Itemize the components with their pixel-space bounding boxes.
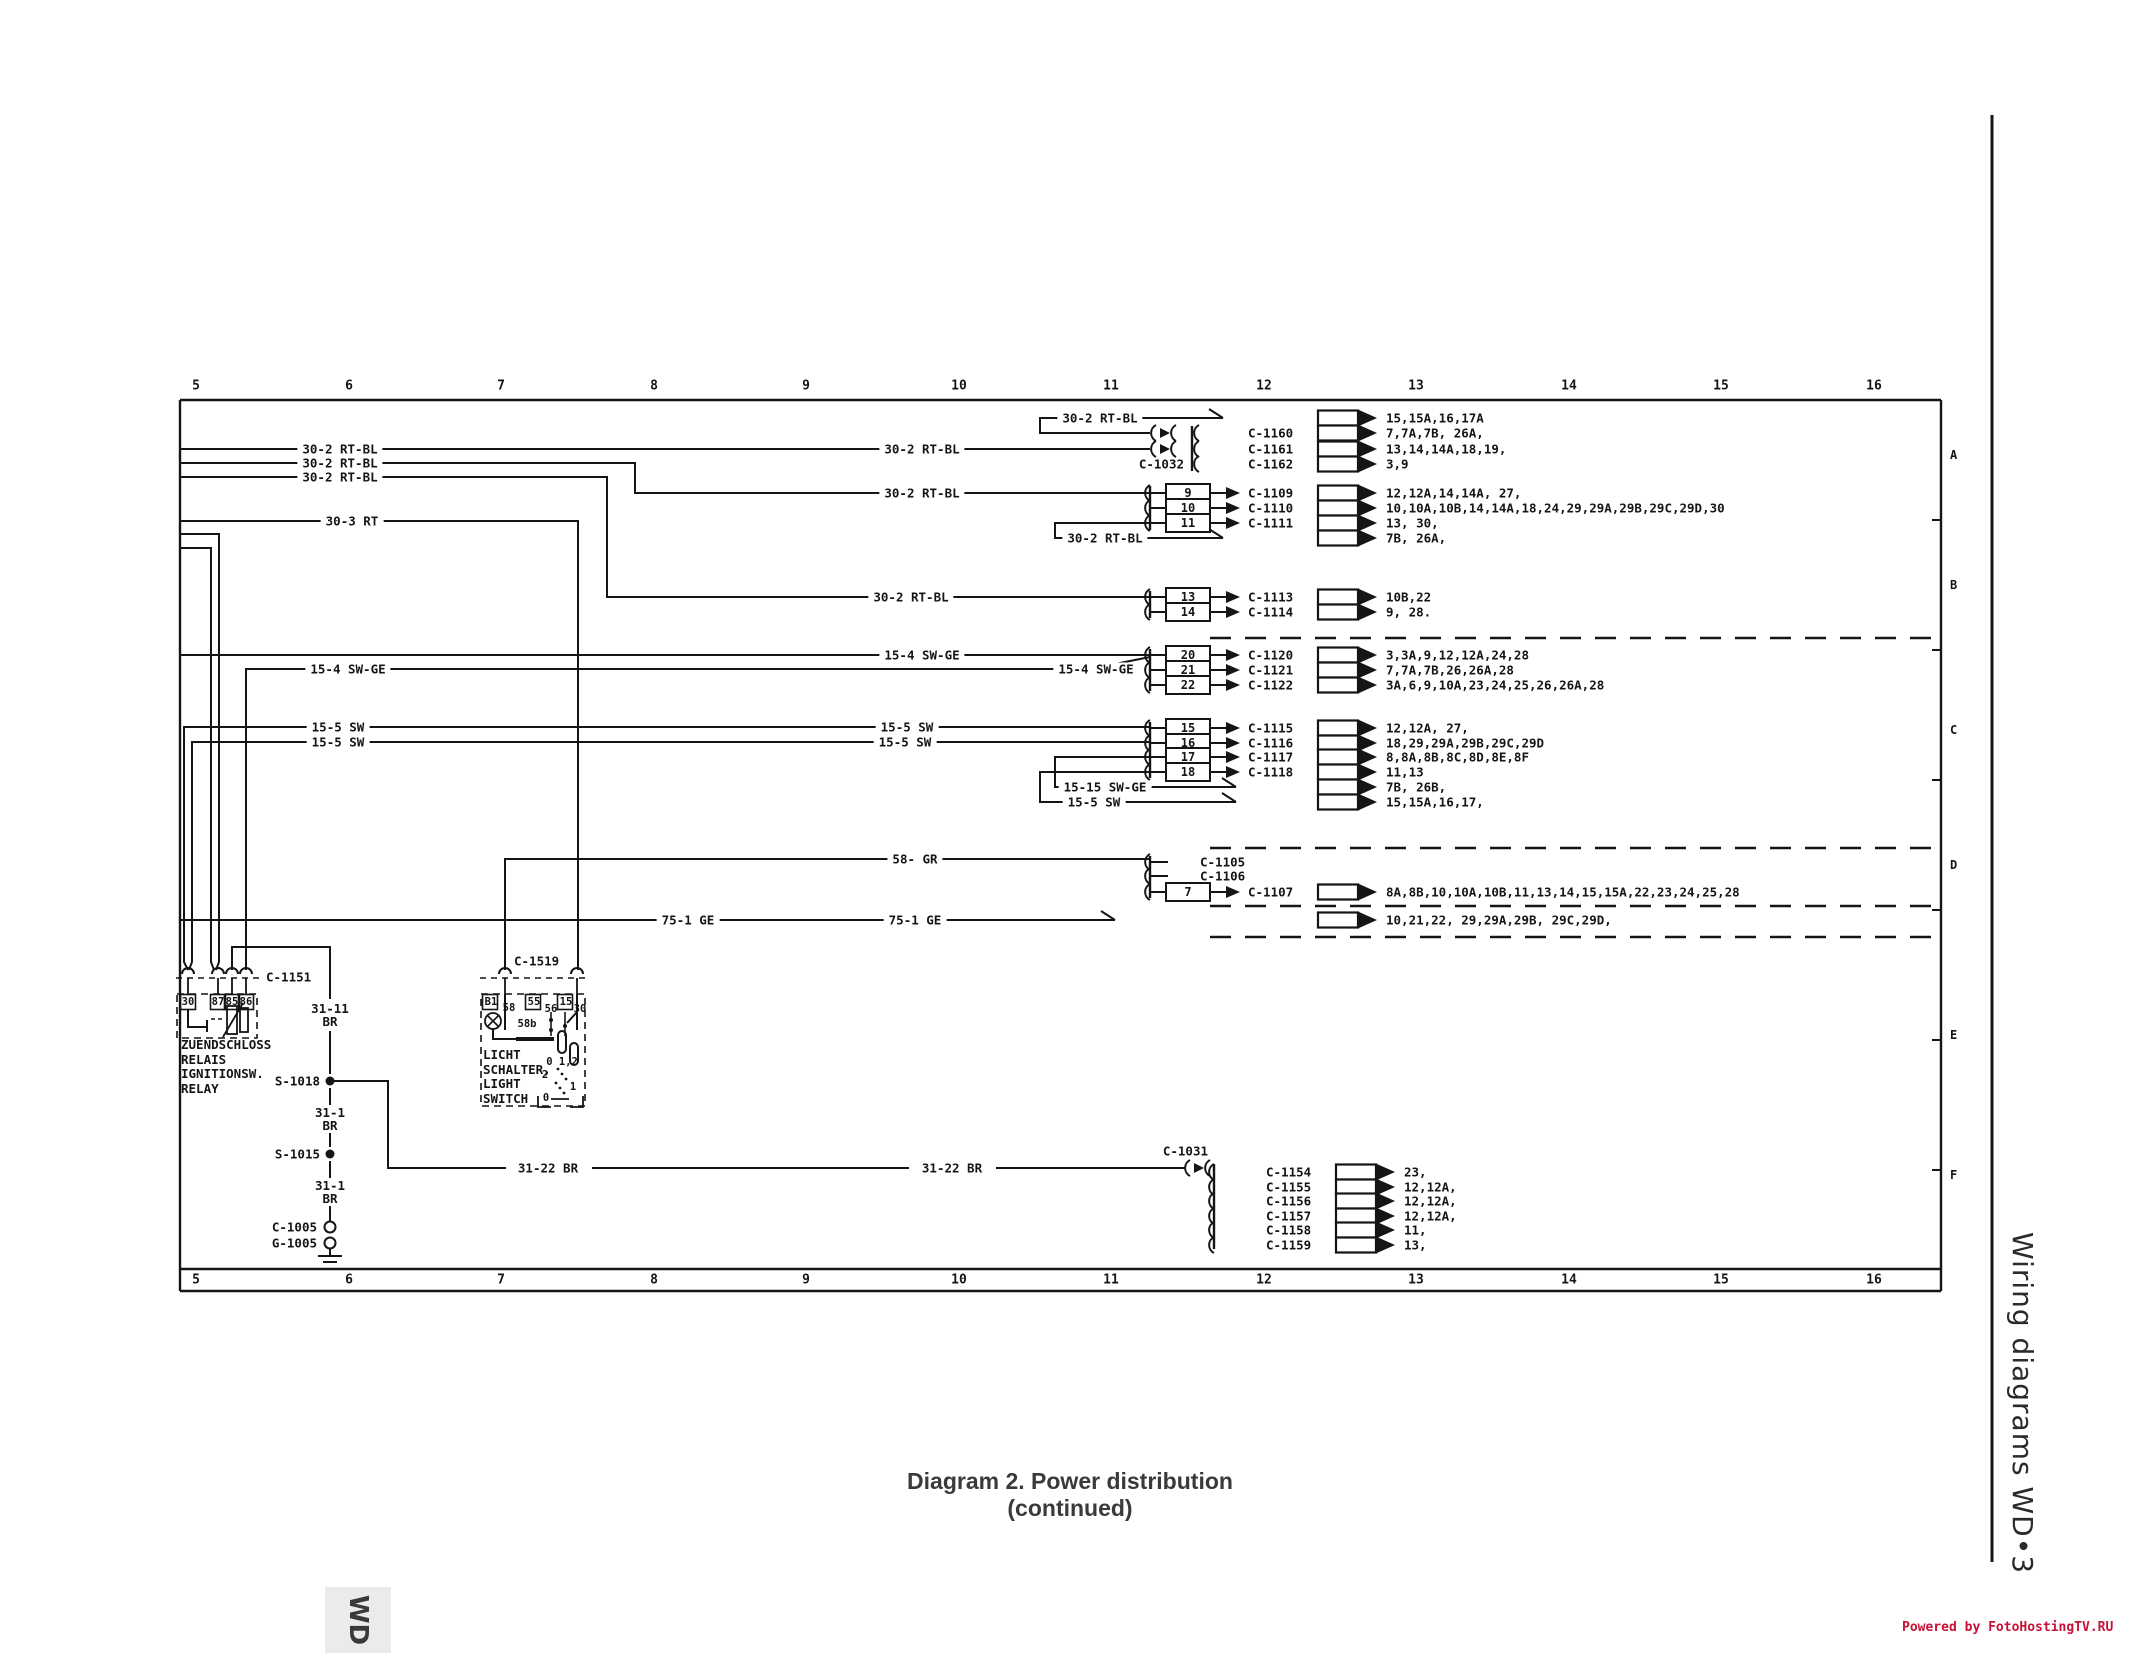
- circuit-numbers: 7B, 26A,: [1386, 532, 1446, 545]
- switch-terminal: B1: [485, 996, 498, 1008]
- connector-label: C-1032: [1139, 458, 1184, 471]
- connector-label: C-1107: [1248, 886, 1293, 899]
- connector-label: C-1519: [514, 955, 559, 968]
- grid-row-label: C: [1950, 723, 1957, 737]
- connector-label: C-1105: [1200, 856, 1245, 869]
- wire-label: 30-3 RT: [321, 515, 384, 528]
- wire-label: 75-1 GE: [657, 914, 720, 927]
- connector-label: C-1156: [1266, 1195, 1311, 1208]
- grid-col-label: 13: [1408, 1273, 1424, 1288]
- grid-col-label: 8: [650, 1273, 658, 1288]
- diagram-caption: Diagram 2. Power distribution (continued…: [845, 1468, 1295, 1522]
- relay-terminal: 30: [182, 996, 195, 1008]
- circuit-numbers: 12,12A,14,14A, 27,: [1386, 487, 1521, 500]
- grid-col-label: 14: [1561, 379, 1577, 394]
- grid-col-label: 14: [1561, 1273, 1577, 1288]
- circuit-numbers: 7,7A,7B,26,26A,28: [1386, 664, 1514, 677]
- grid-col-label: 9: [802, 379, 810, 394]
- connector-label: C-1117: [1248, 751, 1293, 764]
- grid-col-label: 15: [1713, 379, 1729, 394]
- wire-label: 31-22 BR: [513, 1162, 583, 1175]
- grid-col-label: 10: [951, 1273, 967, 1288]
- ground-label: G-1005: [272, 1237, 317, 1250]
- wd-section-tab: WD: [325, 1587, 391, 1653]
- grid-col-label: 7: [497, 1273, 505, 1288]
- circuit-numbers: 11,13: [1386, 766, 1424, 779]
- splice-label: S-1015: [275, 1148, 320, 1161]
- wire-label: 15-4 SW-GE: [879, 649, 964, 662]
- circuit-numbers: 10,10A,10B,14,14A,18,24,29,29A,29B,29C,2…: [1386, 502, 1725, 515]
- circuit-numbers: 11,: [1404, 1224, 1427, 1237]
- connector-label: C-1111: [1248, 517, 1293, 530]
- circuit-numbers: 13,14,14A,18,19,: [1386, 443, 1506, 456]
- grid-col-label: 7: [497, 379, 505, 394]
- wire-label: 30-2 RT-BL: [297, 443, 382, 456]
- wire-label: 31-22 BR: [917, 1162, 987, 1175]
- wire-label: 15-5 SW: [876, 721, 939, 734]
- wire-label: 15-4 SW-GE: [1053, 663, 1138, 676]
- pin-number: 20: [1181, 648, 1195, 662]
- pin-number: 22: [1181, 678, 1195, 692]
- connector-label: C-1005: [272, 1221, 317, 1234]
- wire-label: 31-11 BR: [306, 1002, 354, 1028]
- grid-col-label: 8: [650, 379, 658, 394]
- circuit-numbers: 3,3A,9,12,12A,24,28: [1386, 649, 1529, 662]
- pin-number: 18: [1181, 765, 1195, 779]
- connector-label: C-1151: [266, 971, 311, 984]
- circuit-numbers: 3A,6,9,10A,23,24,25,26,26A,28: [1386, 679, 1604, 692]
- connector-label: C-1159: [1266, 1239, 1311, 1252]
- switch-terminal: 15: [560, 996, 573, 1008]
- connector-label: C-1031: [1163, 1145, 1208, 1158]
- switch-terminal: 58b: [518, 1018, 537, 1030]
- wire-label: 15-4 SW-GE: [305, 663, 390, 676]
- wire-label: 30-2 RT-BL: [868, 591, 953, 604]
- wire-label: 15-5 SW: [1063, 796, 1126, 809]
- wire-label: 30-2 RT-BL: [879, 443, 964, 456]
- wire-label: 30-2 RT-BL: [1062, 532, 1147, 545]
- circuit-numbers: 8,8A,8B,8C,8D,8E,8F: [1386, 751, 1529, 764]
- circuit-numbers: 12,12A,: [1404, 1195, 1457, 1208]
- wd-tab-label: WD: [343, 1595, 373, 1645]
- wire-label: 30-2 RT-BL: [297, 471, 382, 484]
- circuit-numbers: 12,12A,: [1404, 1210, 1457, 1223]
- circuit-numbers: 7B, 26B,: [1386, 781, 1446, 794]
- switch-position-label: 1: [570, 1081, 576, 1093]
- connector-label: C-1115: [1248, 722, 1293, 735]
- switch-terminal: 56: [545, 1003, 558, 1015]
- connector-label: C-1122: [1248, 679, 1293, 692]
- grid-row-label: E: [1950, 1028, 1957, 1042]
- wire-label: 31-1 BR: [310, 1106, 350, 1132]
- circuit-numbers: 10B,22: [1386, 591, 1431, 604]
- circuit-numbers: 15,15A,16,17,: [1386, 796, 1484, 809]
- pin-number: 7: [1184, 885, 1191, 899]
- grid-col-label: 5: [192, 1273, 200, 1288]
- circuit-numbers: 3,9: [1386, 458, 1409, 471]
- circuit-numbers: 12,12A,: [1404, 1181, 1457, 1194]
- connector-label: C-1110: [1248, 502, 1293, 515]
- circuit-numbers: 23,: [1404, 1166, 1427, 1179]
- pin-number: 10: [1181, 501, 1195, 515]
- wire-label: 15-5 SW: [307, 721, 370, 734]
- connector-label: C-1154: [1266, 1166, 1311, 1179]
- connector-label: C-1162: [1248, 458, 1293, 471]
- grid-col-label: 13: [1408, 379, 1424, 394]
- grid-col-label: 12: [1256, 379, 1272, 394]
- relay-terminal: 85: [226, 996, 239, 1008]
- connector-label: C-1114: [1248, 606, 1293, 619]
- pin-number: 15: [1181, 721, 1195, 735]
- grid-row-label: F: [1950, 1168, 1957, 1182]
- switch-terminal: 58: [503, 1002, 516, 1014]
- circuit-numbers: 10,21,22, 29,29A,29B, 29C,29D,: [1386, 914, 1612, 927]
- grid-col-label: 16: [1866, 1273, 1882, 1288]
- connector-label: C-1106: [1200, 870, 1245, 883]
- circuit-numbers: 12,12A, 27,: [1386, 722, 1469, 735]
- grid-col-label: 15: [1713, 1273, 1729, 1288]
- wire-label: 30-2 RT-BL: [297, 457, 382, 470]
- pin-number: 16: [1181, 736, 1195, 750]
- relay-terminal: 87: [212, 996, 225, 1008]
- grid-col-label: 11: [1103, 1273, 1119, 1288]
- connector-label: C-1121: [1248, 664, 1293, 677]
- wiring-diagram-page: 5 6 7 8 9 10 11 12 13 14 15 16 5 6 7 8 9…: [0, 0, 2131, 1653]
- wire-label: 15-5 SW: [307, 736, 370, 749]
- wire-label: 75-1 GE: [884, 914, 947, 927]
- switch-position-label: 0: [543, 1092, 549, 1104]
- connector-label: C-1118: [1248, 766, 1293, 779]
- connector-label: C-1161: [1248, 443, 1293, 456]
- circuit-numbers: 9, 28.: [1386, 606, 1431, 619]
- connector-brackets: [1145, 410, 1395, 1253]
- circuit-numbers: 15,15A,16,17A: [1386, 412, 1484, 425]
- wire-label: 58- GR: [887, 853, 942, 866]
- wire-label: 30-2 RT-BL: [1057, 412, 1142, 425]
- circuit-numbers: 8A,8B,10,10A,10B,11,13,14,15,15A,22,23,2…: [1386, 886, 1740, 899]
- wire-label: 15-5 SW: [874, 736, 937, 749]
- pin-number: 17: [1181, 750, 1195, 764]
- circuit-numbers: 13, 30,: [1386, 517, 1439, 530]
- wire-label: 30-2 RT-BL: [879, 487, 964, 500]
- connector-label: C-1158: [1266, 1224, 1311, 1237]
- circuit-numbers: 13,: [1404, 1239, 1427, 1252]
- wire-label: 15-15 SW-GE: [1059, 781, 1152, 794]
- connector-label: C-1160: [1248, 427, 1293, 440]
- grid-row-label: A: [1950, 448, 1957, 462]
- grid-row-label: B: [1950, 578, 1957, 592]
- grid-col-label: 5: [192, 379, 200, 394]
- switch-terminal: 55: [528, 996, 541, 1008]
- grid-frame: [180, 115, 1992, 1562]
- grid-col-label: 6: [345, 379, 353, 394]
- grid-col-label: 12: [1256, 1273, 1272, 1288]
- connector-label: C-1120: [1248, 649, 1293, 662]
- pin-number: 9: [1184, 486, 1191, 500]
- switch-position-label: 2: [542, 1069, 548, 1081]
- pin-number: 14: [1181, 605, 1195, 619]
- circuit-numbers: 7,7A,7B, 26A,: [1386, 427, 1484, 440]
- circuit-numbers: 18,29,29A,29B,29C,29D: [1386, 737, 1544, 750]
- connector-label: C-1109: [1248, 487, 1293, 500]
- grid-col-label: 10: [951, 379, 967, 394]
- splice-label: S-1018: [275, 1075, 320, 1088]
- connector-label: C-1155: [1266, 1181, 1311, 1194]
- page-side-title: Wiring diagrams WD•3: [2006, 1232, 2039, 1612]
- switch-terminal: 30: [574, 1003, 587, 1015]
- connector-label: C-1116: [1248, 737, 1293, 750]
- connector-label: C-1157: [1266, 1210, 1311, 1223]
- wire-label: 31-1 BR: [310, 1179, 350, 1205]
- grid-col-label: 6: [345, 1273, 353, 1288]
- ground-chain: [318, 1031, 342, 1262]
- switch-position-label: 0 1,2: [546, 1056, 578, 1068]
- connector-label: C-1113: [1248, 591, 1293, 604]
- grid-col-label: 11: [1103, 379, 1119, 394]
- relay-terminal: 86: [240, 996, 253, 1008]
- watermark-text: Powered by FotoHostingTV.RU: [1902, 1620, 2113, 1635]
- grid-row-label: D: [1950, 858, 1957, 872]
- pin-number: 13: [1181, 590, 1195, 604]
- pin-number: 11: [1181, 516, 1195, 530]
- diagram-canvas: [0, 0, 2131, 1653]
- grid-col-label: 16: [1866, 379, 1882, 394]
- grid-col-label: 9: [802, 1273, 810, 1288]
- light-switch-name: LICHT SCHALTER, LIGHT SWITCH: [483, 1048, 551, 1106]
- relay-name: ZUENDSCHLOSS RELAIS IGNITIONSW. RELAY: [181, 1038, 271, 1096]
- pin-number: 21: [1181, 663, 1195, 677]
